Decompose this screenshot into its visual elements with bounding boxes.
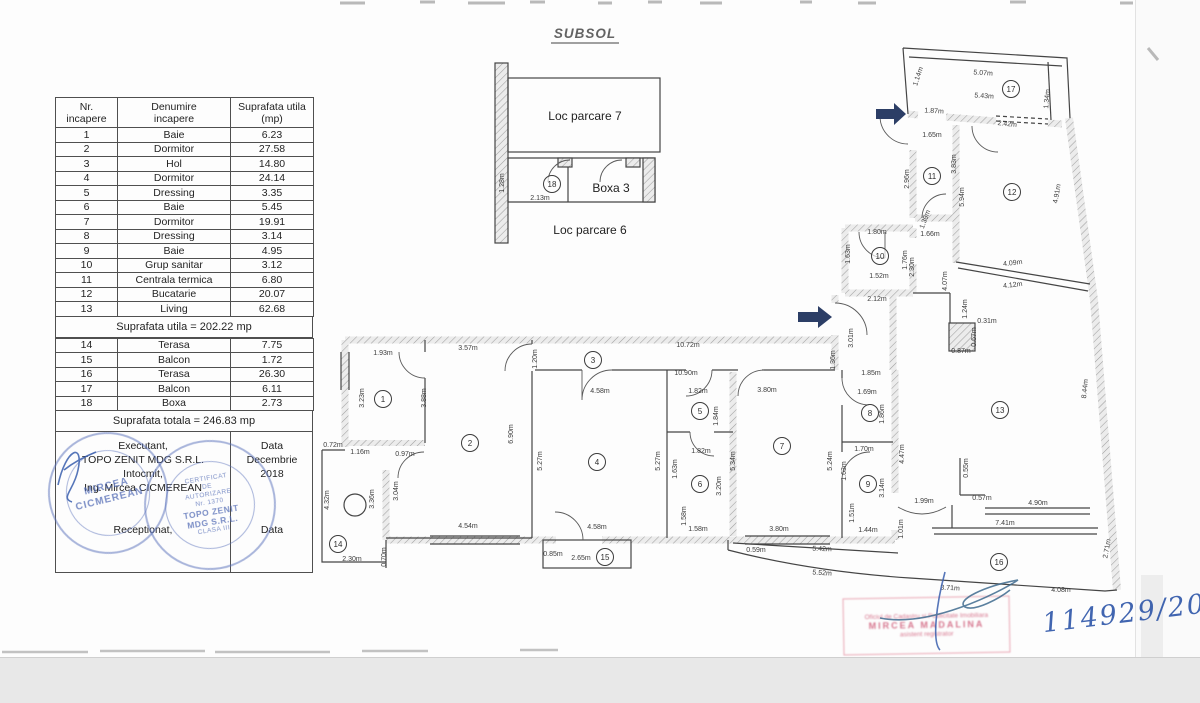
table-cell: Dormitor <box>118 215 231 230</box>
room-number: 17 <box>1003 81 1020 98</box>
room-number: 13 <box>992 402 1009 419</box>
room-number-circles: 123456789101112131415161718 <box>330 81 1021 571</box>
dimension-label: 2.30m <box>342 556 362 563</box>
table-cell: 4 <box>56 171 118 186</box>
table-cell: 13 <box>56 302 118 317</box>
scan-smear <box>2 650 558 652</box>
walls-exterior <box>345 114 1117 590</box>
room-number: 15 <box>597 549 614 566</box>
table-row: 17Balcon6.11 <box>56 382 314 397</box>
svg-text:18: 18 <box>548 180 557 189</box>
dimension-label: 0.67m <box>971 327 978 347</box>
table-cell: 62.68 <box>231 302 314 317</box>
table-cell: 6.11 <box>231 382 314 397</box>
page-title: SUBSOL <box>554 26 616 41</box>
dimension-label: 2.71m <box>1102 538 1112 559</box>
table-cell: 4.95 <box>231 244 314 259</box>
table-cell: Dormitor <box>118 142 231 157</box>
dimension-label: 1.85m <box>861 370 881 377</box>
table-row: 14Terasa7.75 <box>56 338 314 353</box>
table-row: 11Centrala termica6.80 <box>56 273 314 288</box>
dimension-label: 3.14m <box>879 478 886 498</box>
table-cell: 20.07 <box>231 287 314 302</box>
table-cell: 12 <box>56 287 118 302</box>
dimension-label: 4.58m <box>587 524 607 531</box>
dimension-labels: 1.28m2.13m1.93m3.57m10.72m1.20m3.23m3.88… <box>323 66 1112 594</box>
total-band: Suprafata totala = 246.83 mp <box>55 410 313 432</box>
svg-text:2: 2 <box>468 439 473 448</box>
svg-text:17: 17 <box>1007 85 1016 94</box>
scanned-floorplan-document: Nr. incapereDenumire incapereSuprafata u… <box>0 0 1200 703</box>
dimension-label: 3.83m <box>951 154 958 174</box>
dimension-label: 0.59m <box>746 547 766 554</box>
table-row: 7Dormitor19.91 <box>56 215 314 230</box>
svg-text:16: 16 <box>995 558 1004 567</box>
dimension-label: 0.57m <box>972 495 992 502</box>
dimension-label: 3.23m <box>359 388 366 408</box>
dimension-label: 2.42m <box>997 120 1017 129</box>
table-cell: Balcon <box>118 353 231 368</box>
table-cell: Terasa <box>118 367 231 382</box>
label-boxa-3: Boxa 3 <box>592 181 630 195</box>
table-cell: 2 <box>56 142 118 157</box>
table-cell: 14 <box>56 338 118 353</box>
plan-text-labels: Loc parcare 7Boxa 3Loc parcare 6 <box>548 109 630 237</box>
table-cell: Grup sanitar <box>118 258 231 273</box>
table-row: 2Dormitor27.58 <box>56 142 314 157</box>
table-row: 4Dormitor24.14 <box>56 171 314 186</box>
dimension-label: 0.70m <box>381 547 388 567</box>
dimension-label: 4.08m <box>1051 587 1071 594</box>
scan-artifacts <box>340 2 1158 60</box>
table-cell: 5.45 <box>231 200 314 215</box>
fixture-circle <box>344 494 366 516</box>
dimension-label: 1.63m <box>845 244 852 264</box>
label-loc-parcare-6: Loc parcare 6 <box>553 223 627 237</box>
dimension-label: 1.28m <box>499 173 506 193</box>
table-cell: 3.14 <box>231 229 314 244</box>
dimension-label: 3.71m <box>940 584 960 592</box>
dimension-label: 1.24m <box>962 299 969 319</box>
dimension-label: 1.80m <box>867 229 887 236</box>
dimension-label: 1.39m <box>919 209 932 230</box>
table-cell: 26.30 <box>231 367 314 382</box>
table-cell: 11 <box>56 273 118 288</box>
dimension-label: 4.47m <box>899 444 906 464</box>
page-fold-line <box>1135 0 1136 657</box>
dimension-label: 5.43m <box>974 92 994 100</box>
svg-text:13: 13 <box>996 406 1005 415</box>
room-number: 18 <box>544 176 561 193</box>
table-cell: 10 <box>56 258 118 273</box>
dimension-label: 4.54m <box>458 523 478 530</box>
dimension-label: 1.70m <box>854 446 874 453</box>
svg-text:15: 15 <box>601 553 610 562</box>
table-cell: 6 <box>56 200 118 215</box>
dimension-label: 4.32m <box>324 490 331 510</box>
table-row: 6Baie5.45 <box>56 200 314 215</box>
dimension-label: 1.58m <box>688 526 708 533</box>
dimension-label: 1.66m <box>920 231 940 238</box>
svg-text:6: 6 <box>698 480 703 489</box>
dimension-label: 1.36m <box>830 350 837 370</box>
room-number: 5 <box>692 403 709 420</box>
room-number: 6 <box>692 476 709 493</box>
table-cell: 6.80 <box>231 273 314 288</box>
table-row: 5Dressing3.35 <box>56 186 314 201</box>
entry-arrow-icon <box>876 103 906 125</box>
dimension-label: 2.13m <box>530 195 550 202</box>
dimension-label: 1.87m <box>924 107 944 115</box>
dimension-label: 3.36m <box>369 489 376 509</box>
table-cell: 9 <box>56 244 118 259</box>
table-cell: Baie <box>118 200 231 215</box>
table-cell: 16 <box>56 367 118 382</box>
areas-table-annex: 14Terasa7.7515Balcon1.7216Terasa26.3017B… <box>55 338 314 412</box>
dimension-label: 1.69m <box>857 389 877 396</box>
subtotal-band: Suprafata utila = 202.22 mp <box>55 316 313 338</box>
room-number: 9 <box>860 476 877 493</box>
dimension-label: 10.90m <box>674 370 698 377</box>
dimension-label: 3.80m <box>757 387 777 394</box>
dimension-label: 1.58m <box>681 506 688 526</box>
room-number: 11 <box>924 168 941 185</box>
dimension-label: 1.34m <box>1043 89 1052 109</box>
table-row: 9Baie4.95 <box>56 244 314 259</box>
table-cell: Bucatarie <box>118 287 231 302</box>
table-cell: 1 <box>56 128 118 143</box>
entrance-arrows <box>798 103 906 328</box>
page-bottom-edge <box>0 657 1200 703</box>
column-header: Nr. incapere <box>56 98 118 128</box>
table-cell: 14.80 <box>231 157 314 172</box>
table-cell: 3.35 <box>231 186 314 201</box>
dimension-label: 4.91m <box>1052 183 1062 204</box>
dimension-label: 1.52m <box>869 273 889 280</box>
dimension-label: 5.52m <box>812 569 832 577</box>
dimension-label: 0.85m <box>543 551 563 558</box>
room-number: 16 <box>991 554 1008 571</box>
table-header-row: Nr. incapereDenumire incapereSuprafata u… <box>56 98 314 128</box>
reception-stamp: Oficiul de Cadastru si Publicitate Imobi… <box>843 596 1011 656</box>
dimension-label: 0.31m <box>977 318 997 325</box>
svg-text:14: 14 <box>334 540 343 549</box>
entry-arrow-icon <box>798 306 832 328</box>
room-number: 7 <box>774 438 791 455</box>
label-loc-parcare-7: Loc parcare 7 <box>548 109 622 123</box>
room-number: 10 <box>872 248 889 265</box>
walls-interior <box>322 48 1117 591</box>
dimension-label: 4.12m <box>1003 281 1023 290</box>
dimension-label: 0.55m <box>963 458 970 478</box>
table-cell: 3 <box>56 157 118 172</box>
table-cell: Baie <box>118 128 231 143</box>
room-number: 14 <box>330 536 347 553</box>
dimension-label: 1.93m <box>373 350 393 357</box>
table-cell: 7.75 <box>231 338 314 353</box>
table-cell: 2.73 <box>231 396 314 411</box>
dimension-label: 3.04m <box>393 481 400 501</box>
dimension-label: 4.09m <box>1003 259 1023 268</box>
dimension-label: 1.44m <box>858 527 878 534</box>
data-label: Data <box>261 440 283 452</box>
svg-text:3: 3 <box>591 356 596 365</box>
dimension-label: 1.84m <box>713 406 720 426</box>
dimension-label: 3.57m <box>458 345 478 352</box>
dimension-label: 1.63m <box>672 459 679 479</box>
table-row: 16Terasa26.30 <box>56 367 314 382</box>
svg-text:12: 12 <box>1008 188 1017 197</box>
dimension-label: 5.27m <box>655 451 662 471</box>
table-cell: 19.91 <box>231 215 314 230</box>
dimension-label: 0.72m <box>323 442 343 449</box>
table-cell: Dressing <box>118 186 231 201</box>
table-cell: 7 <box>56 215 118 230</box>
room-number: 12 <box>1004 184 1021 201</box>
table-cell: 24.14 <box>231 171 314 186</box>
table-cell: 15 <box>56 353 118 368</box>
table-cell: Balcon <box>118 382 231 397</box>
column-header: Suprafata utila (mp) <box>231 98 314 128</box>
stamp-text-line: asistent registrator <box>900 630 954 640</box>
dimension-label: 5.24m <box>827 451 834 471</box>
dimension-label: 2.65m <box>571 555 591 562</box>
dimension-label: 1.14m <box>912 66 925 87</box>
dimension-label: 1.63m <box>841 461 848 481</box>
table-cell: 5 <box>56 186 118 201</box>
dimension-label: 5.94m <box>959 187 966 207</box>
table-cell: Boxa <box>118 396 231 411</box>
table-row: 12Bucatarie20.07 <box>56 287 314 302</box>
dimension-label: 3.20m <box>716 476 723 496</box>
table-cell: Centrala termica <box>118 273 231 288</box>
table-cell: Baie <box>118 244 231 259</box>
table-cell: 1.72 <box>231 353 314 368</box>
svg-text:8: 8 <box>868 409 873 418</box>
dimension-label: 0.87m <box>951 348 971 355</box>
dimension-label: 4.58m <box>590 388 610 395</box>
table-row: 18Boxa2.73 <box>56 396 314 411</box>
svg-text:7: 7 <box>780 442 785 451</box>
svg-text:5: 5 <box>698 407 703 416</box>
room-number: 2 <box>462 435 479 452</box>
dimension-label: 5.27m <box>537 451 544 471</box>
dimension-label: 4.07m <box>942 271 949 291</box>
dimension-label: 2.30m <box>909 257 916 277</box>
dimension-label: 3.80m <box>769 526 789 533</box>
svg-text:9: 9 <box>866 480 871 489</box>
page-right-margin <box>1136 0 1200 657</box>
dimension-label: 4.90m <box>1028 500 1048 507</box>
table-cell: Dressing <box>118 229 231 244</box>
dimension-label: 2.96m <box>904 169 911 189</box>
dimension-label: 5.42m <box>812 546 832 554</box>
dimension-label: 1.65m <box>922 132 942 139</box>
table-cell: Dormitor <box>118 171 231 186</box>
table-row: 3Hol14.80 <box>56 157 314 172</box>
table-cell: 3.12 <box>231 258 314 273</box>
dimension-label: 1.86m <box>879 404 886 424</box>
dimension-label: 1.76m <box>902 250 909 270</box>
table-cell: 27.58 <box>231 142 314 157</box>
room-number: 8 <box>862 405 879 422</box>
dimension-label: 10.72m <box>676 342 700 349</box>
dimension-label: 1.20m <box>532 349 539 369</box>
table-cell: 6.23 <box>231 128 314 143</box>
dimension-label: 8.44m <box>1081 379 1090 399</box>
table-cell: Terasa <box>118 338 231 353</box>
table-cell: 18 <box>56 396 118 411</box>
table-cell: Living <box>118 302 231 317</box>
dimension-label: 1.99m <box>914 498 934 505</box>
dimension-label: 1.16m <box>350 449 370 456</box>
table-row: 1Baie6.23 <box>56 128 314 143</box>
dimension-label: 5.34m <box>730 451 737 471</box>
dimension-label: 1.82m <box>688 388 708 395</box>
svg-text:11: 11 <box>928 172 937 181</box>
dimension-label: 2.12m <box>867 296 887 303</box>
room-number: 3 <box>585 352 602 369</box>
table-cell: 17 <box>56 382 118 397</box>
dimension-label: 1.51m <box>849 503 856 523</box>
dimension-label: 7.41m <box>995 520 1015 527</box>
dimension-label: 3.01m <box>848 328 855 348</box>
table-row: 13Living62.68 <box>56 302 314 317</box>
dimension-label: 3.88m <box>421 388 428 408</box>
dimension-label: 1.82m <box>691 448 711 455</box>
table-row: 10Grup sanitar3.12 <box>56 258 314 273</box>
areas-table-main: Nr. incapereDenumire incapereSuprafata u… <box>55 97 314 317</box>
room-number: 4 <box>589 454 606 471</box>
svg-text:4: 4 <box>595 458 600 467</box>
svg-text:10: 10 <box>876 252 885 261</box>
dimension-label: 0.97m <box>395 451 415 458</box>
svg-text:1: 1 <box>381 395 386 404</box>
room-number: 1 <box>375 391 392 408</box>
table-cell: 8 <box>56 229 118 244</box>
dimension-label: 5.07m <box>973 69 993 77</box>
dimension-label: 6.90m <box>508 424 515 444</box>
table-row: 8Dressing3.14 <box>56 229 314 244</box>
dimension-label: 1.01m <box>898 519 905 539</box>
door-arcs <box>398 116 998 540</box>
column-header: Denumire incapere <box>118 98 231 128</box>
table-cell: Hol <box>118 157 231 172</box>
table-row: 15Balcon1.72 <box>56 353 314 368</box>
